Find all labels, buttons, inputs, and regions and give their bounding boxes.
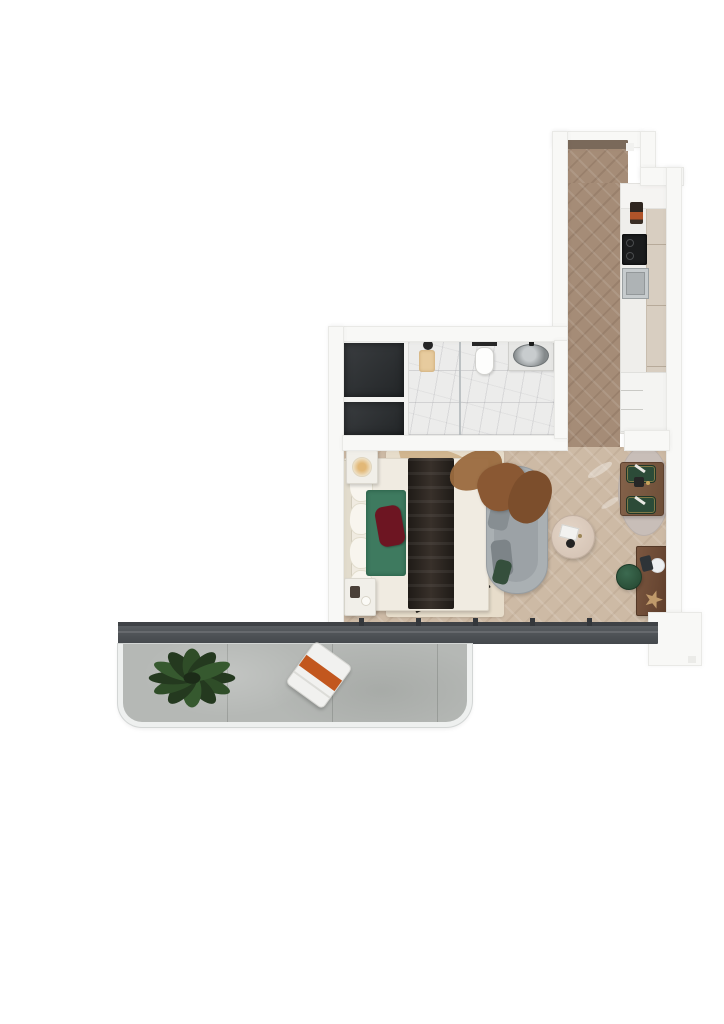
wall-bath-hall-divider [554, 340, 568, 439]
wall-kitchen-end [624, 430, 670, 451]
cooktop-burner [626, 252, 634, 260]
bed-dark-runner [408, 458, 454, 609]
shower-glass-partition [459, 340, 461, 435]
coffee-table-decor-small [578, 534, 582, 538]
nightstand-bottom [344, 578, 376, 616]
dining-table-item [634, 477, 644, 487]
table-lamp [352, 457, 372, 477]
door-frame-notch [626, 143, 634, 151]
mullion [416, 618, 421, 626]
wall-left [328, 326, 344, 634]
vanity-basin [513, 344, 549, 367]
mullion [359, 618, 364, 626]
dining-table-glass [646, 481, 650, 485]
wall-bathroom-bottom [342, 435, 568, 451]
wall-hall-left [552, 131, 568, 343]
hallway-floor [566, 183, 620, 447]
nightstand-decor [350, 586, 360, 598]
balcony-plant [145, 646, 239, 710]
shower-mat [419, 350, 435, 372]
mullion [473, 618, 478, 626]
mullion [530, 618, 535, 626]
entrance-door-threshold [566, 140, 628, 149]
cooktop [622, 234, 647, 265]
hallway-floor-top [566, 145, 628, 185]
kitchen-sink-basin [626, 272, 645, 295]
wardrobe-unit-large [344, 343, 404, 397]
wall-column-notch [688, 656, 696, 663]
cooktop-burner [626, 239, 634, 247]
lounge-chair-orange-cushion [297, 654, 345, 694]
coffee-table-decor [566, 539, 575, 548]
balcony-lounge-chair [288, 645, 350, 705]
coffee-machine [630, 202, 643, 224]
floor-plan-canvas [0, 0, 724, 1024]
wardrobe-unit-small [344, 402, 404, 435]
green-pouf [616, 564, 642, 590]
track-top-lip [118, 622, 658, 626]
drawer-seam [621, 409, 643, 410]
toilet [475, 347, 494, 375]
kitchen-upper-cabinet [620, 183, 668, 209]
drawer-seam [621, 390, 643, 391]
track-highlight [118, 631, 658, 633]
lounge-chair-seat [285, 640, 353, 709]
wall-bathroom-top [330, 326, 568, 342]
kitchen-drawer-unit [620, 372, 668, 432]
wall-right [666, 167, 682, 642]
nightstand-dish [361, 596, 371, 606]
sliding-door-track [118, 622, 658, 644]
mullion [587, 618, 592, 626]
